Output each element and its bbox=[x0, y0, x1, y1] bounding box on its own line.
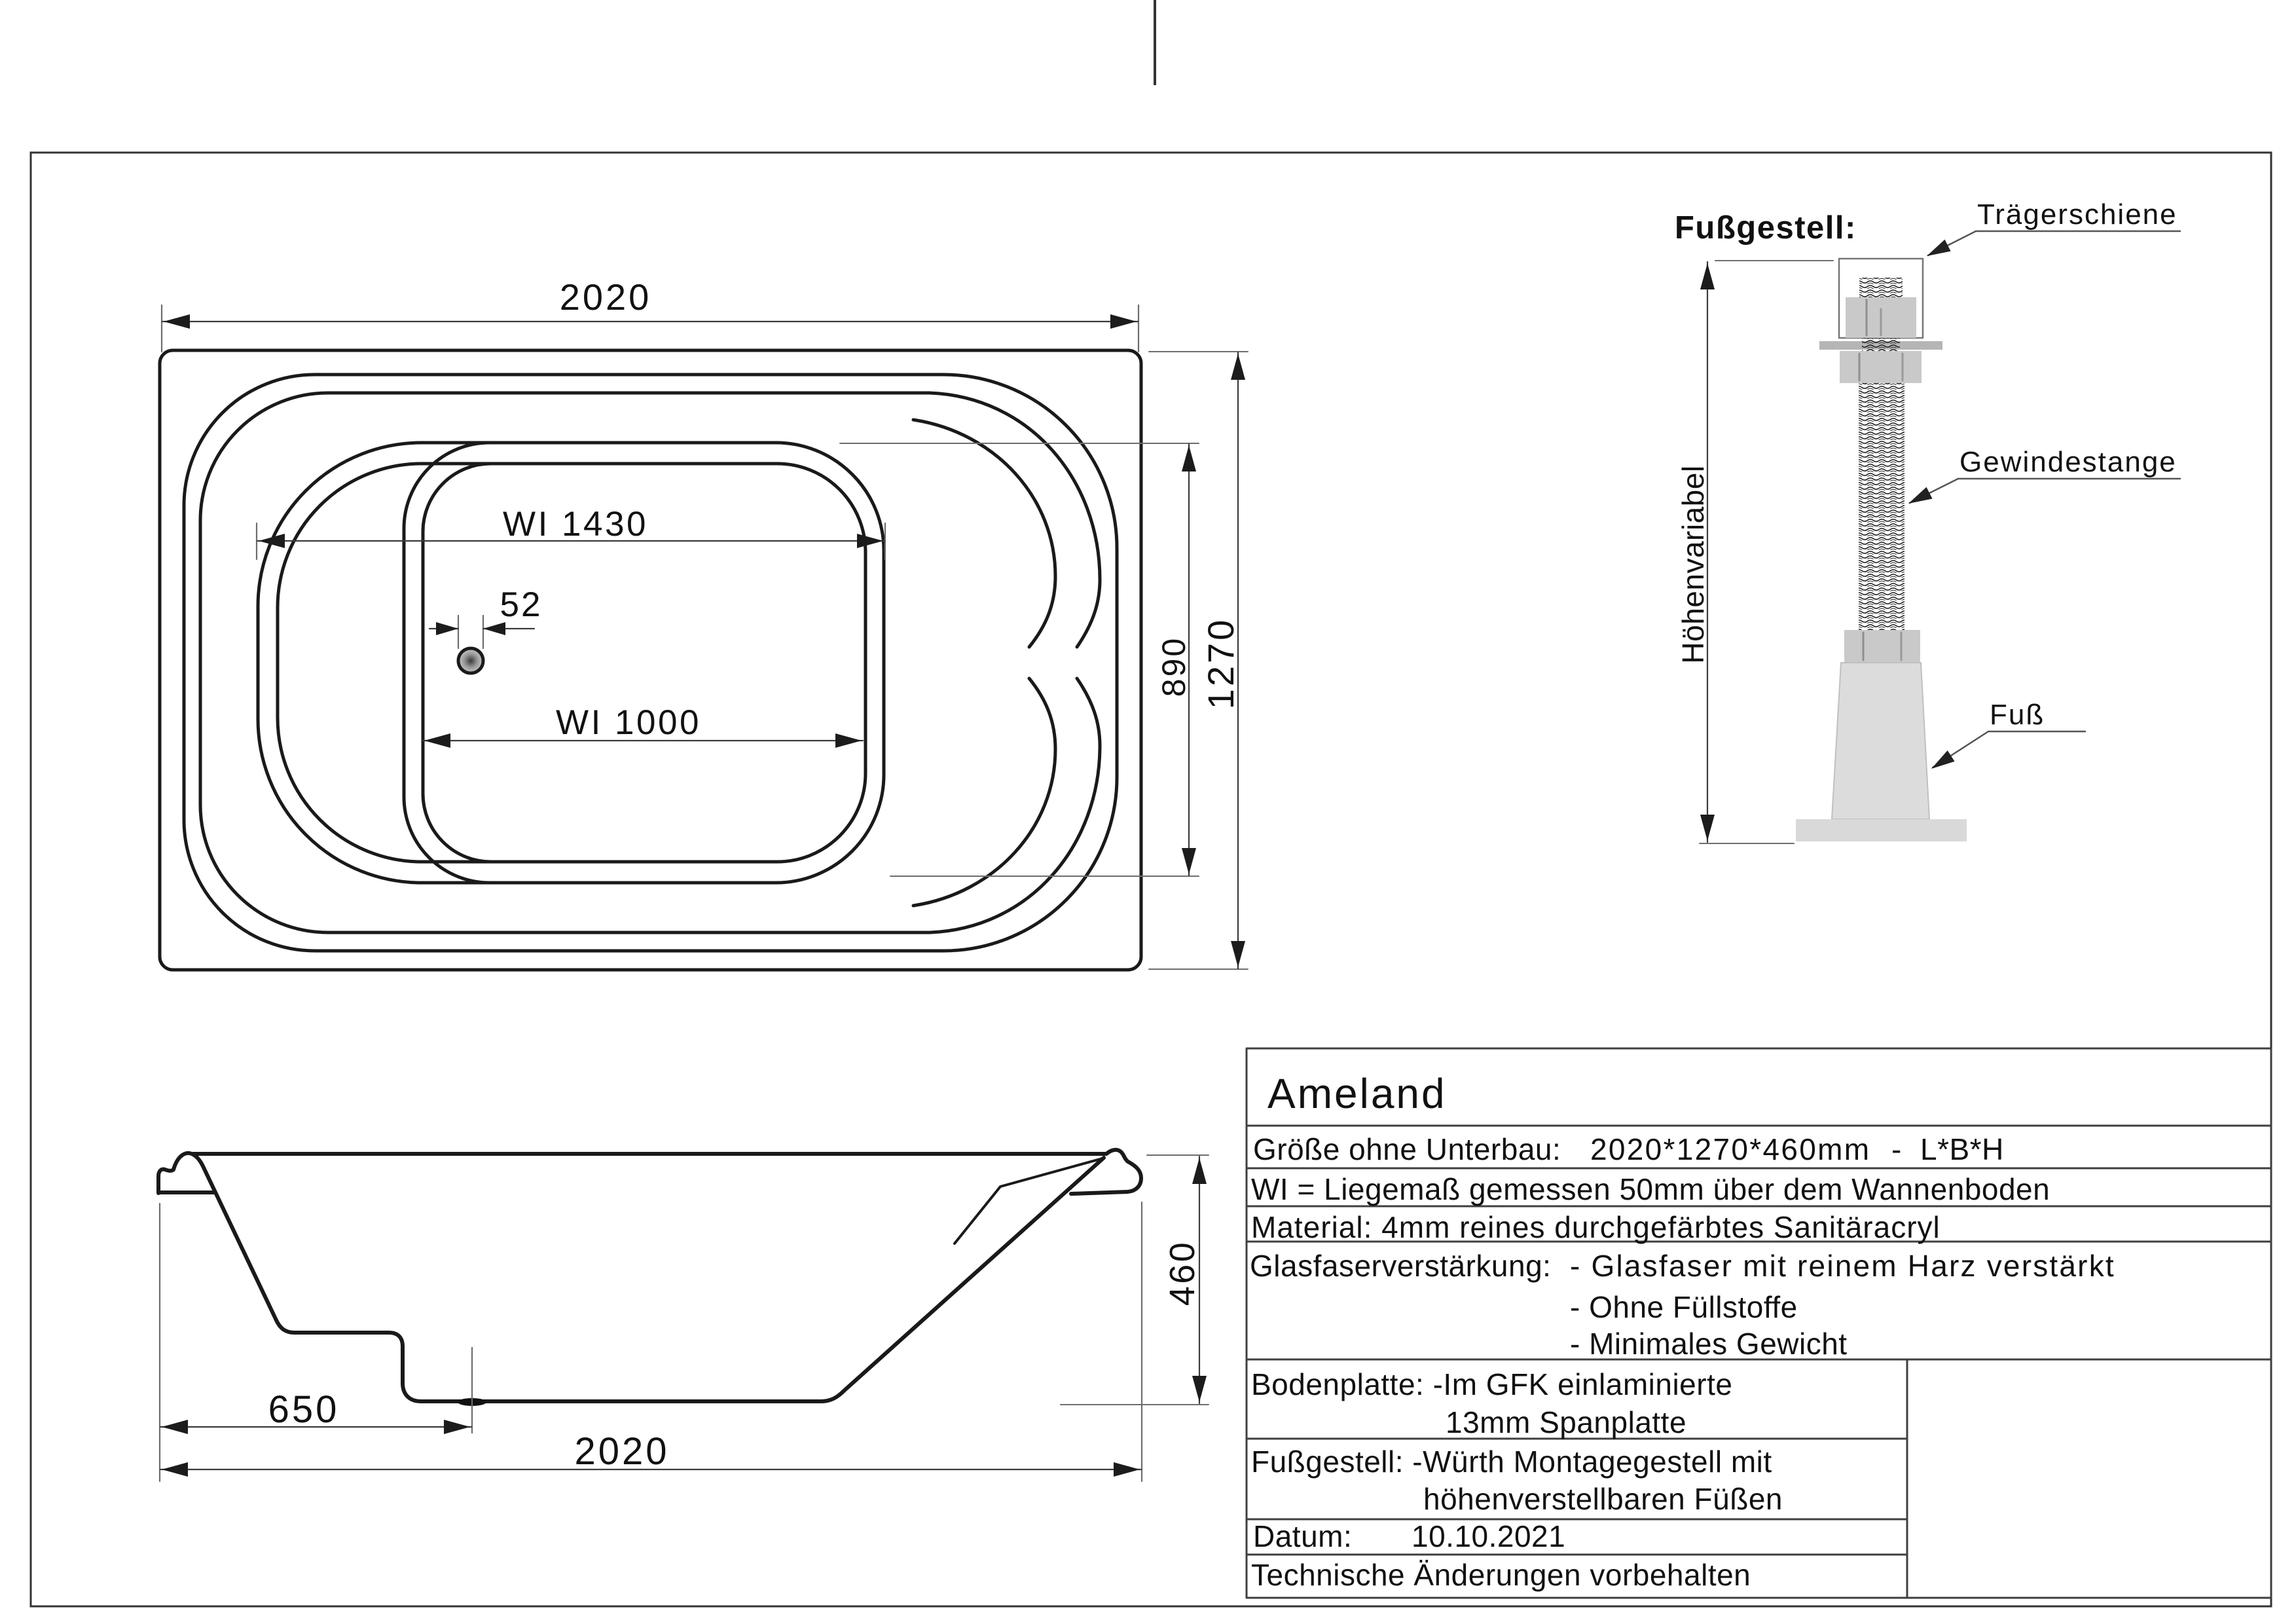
svg-text:Glasfaserverstärkung:: Glasfaserverstärkung: bbox=[1250, 1249, 1551, 1283]
svg-text:460: 460 bbox=[1163, 1240, 1202, 1306]
svg-text:2020: 2020 bbox=[560, 276, 652, 318]
svg-text:L*B*H: L*B*H bbox=[1920, 1132, 2004, 1166]
svg-text:Größe ohne Unterbau:: Größe ohne Unterbau: bbox=[1253, 1132, 1561, 1166]
svg-text:WI 1430: WI 1430 bbox=[503, 505, 648, 544]
svg-text:Bodenplatte: -Im GFK einlamini: Bodenplatte: -Im GFK einlaminierte bbox=[1251, 1367, 1732, 1401]
svg-text:Technische Änderungen vorbehal: Technische Änderungen vorbehalten bbox=[1251, 1558, 1751, 1592]
svg-text:890: 890 bbox=[1156, 637, 1192, 697]
svg-text:10.10.2021: 10.10.2021 bbox=[1412, 1519, 1565, 1553]
svg-text:Fußgestell:: Fußgestell: bbox=[1675, 210, 1857, 246]
svg-text:- Glasfaser mit reinem Harz ve: - Glasfaser mit reinem Harz verstärkt bbox=[1570, 1249, 2115, 1283]
svg-text:- Minimales Gewicht: - Minimales Gewicht bbox=[1570, 1327, 1848, 1361]
svg-text:13mm Spanplatte: 13mm Spanplatte bbox=[1446, 1405, 1686, 1439]
svg-text:Fuß: Fuß bbox=[1990, 699, 2045, 731]
svg-text:Material: 4mm reines durchgefä: Material: 4mm reines durchgefärbtes Sani… bbox=[1251, 1210, 1941, 1244]
svg-text:Gewindestange: Gewindestange bbox=[1959, 446, 2177, 478]
svg-text:1270: 1270 bbox=[1200, 618, 1241, 710]
svg-text:höhenverstellbaren Füßen: höhenverstellbaren Füßen bbox=[1423, 1482, 1783, 1516]
svg-text:Trägerschiene: Trägerschiene bbox=[1977, 198, 2178, 231]
svg-text:Fußgestell: -Würth Montagegest: Fußgestell: -Würth Montagegestell mit bbox=[1251, 1445, 1772, 1479]
svg-text:2020*1270*460mm: 2020*1270*460mm bbox=[1590, 1132, 1870, 1166]
svg-text:WI 1000: WI 1000 bbox=[556, 703, 701, 742]
svg-text:2020: 2020 bbox=[574, 1430, 669, 1473]
svg-text:WI = Liegemaß gemessen 50mm üb: WI = Liegemaß gemessen 50mm über dem Wan… bbox=[1251, 1172, 2050, 1206]
svg-text:Datum:: Datum: bbox=[1253, 1519, 1352, 1553]
svg-text:-: - bbox=[1891, 1132, 1902, 1166]
svg-text:52: 52 bbox=[500, 585, 543, 624]
svg-text:- Ohne Füllstoffe: - Ohne Füllstoffe bbox=[1570, 1290, 1798, 1324]
svg-text:Höhenvariabel: Höhenvariabel bbox=[1676, 465, 1710, 663]
svg-text:Ameland: Ameland bbox=[1267, 1070, 1447, 1117]
svg-text:650: 650 bbox=[268, 1388, 340, 1431]
